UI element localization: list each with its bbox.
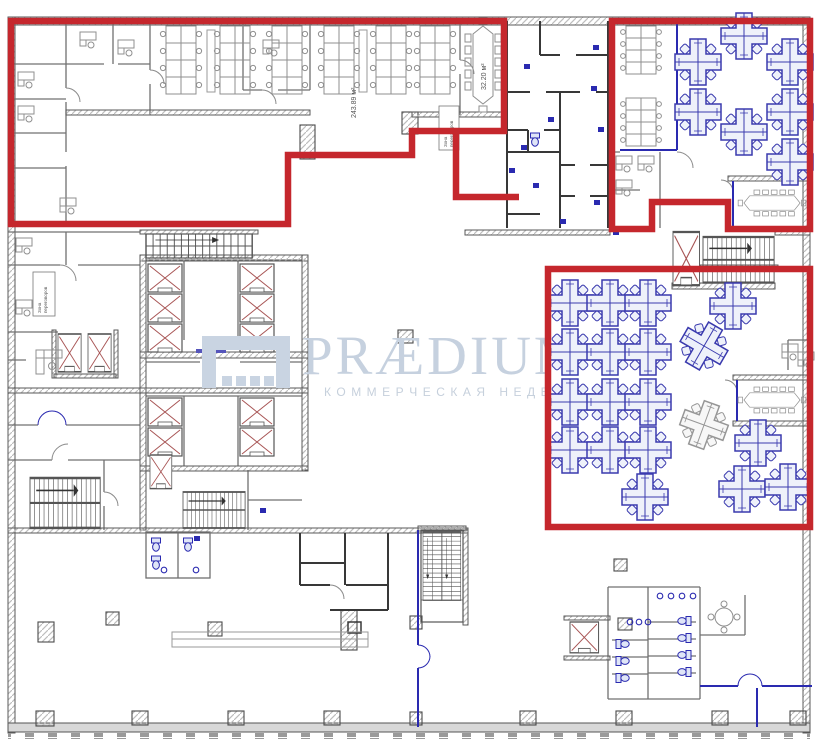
floor-plan-page: 243.89 м² 32.20 м² Зона переговоров Зона… [0,0,821,741]
room-tag-line2: переговоров [449,120,454,147]
stairs-run [146,234,252,258]
open-office-area-label: 243.89 м² [351,87,358,118]
wc-fixture [678,617,691,626]
watermark-tagline: КОММЕРЧЕСКАЯ НЕДВИЖ [324,385,546,399]
workstation-cluster [675,39,721,85]
curtain-wall-mullions [8,733,810,739]
room-tag2-line2: переговоров [43,286,48,313]
watermark-brand: PRÆDIUM [302,330,546,387]
room-tag-line1: Зона [443,136,448,147]
watermark: PRÆDIUM КОММЕРЧЕСКАЯ НЕДВИЖ [196,330,546,408]
room-tag2-line1: Зона [37,302,42,313]
walls-central-top [507,21,608,228]
praedium-logo-icon [202,336,290,388]
elevator-shaft [148,264,182,292]
desk-bank [160,26,201,94]
meeting-room-area-label: 32.20 м² [481,63,488,90]
